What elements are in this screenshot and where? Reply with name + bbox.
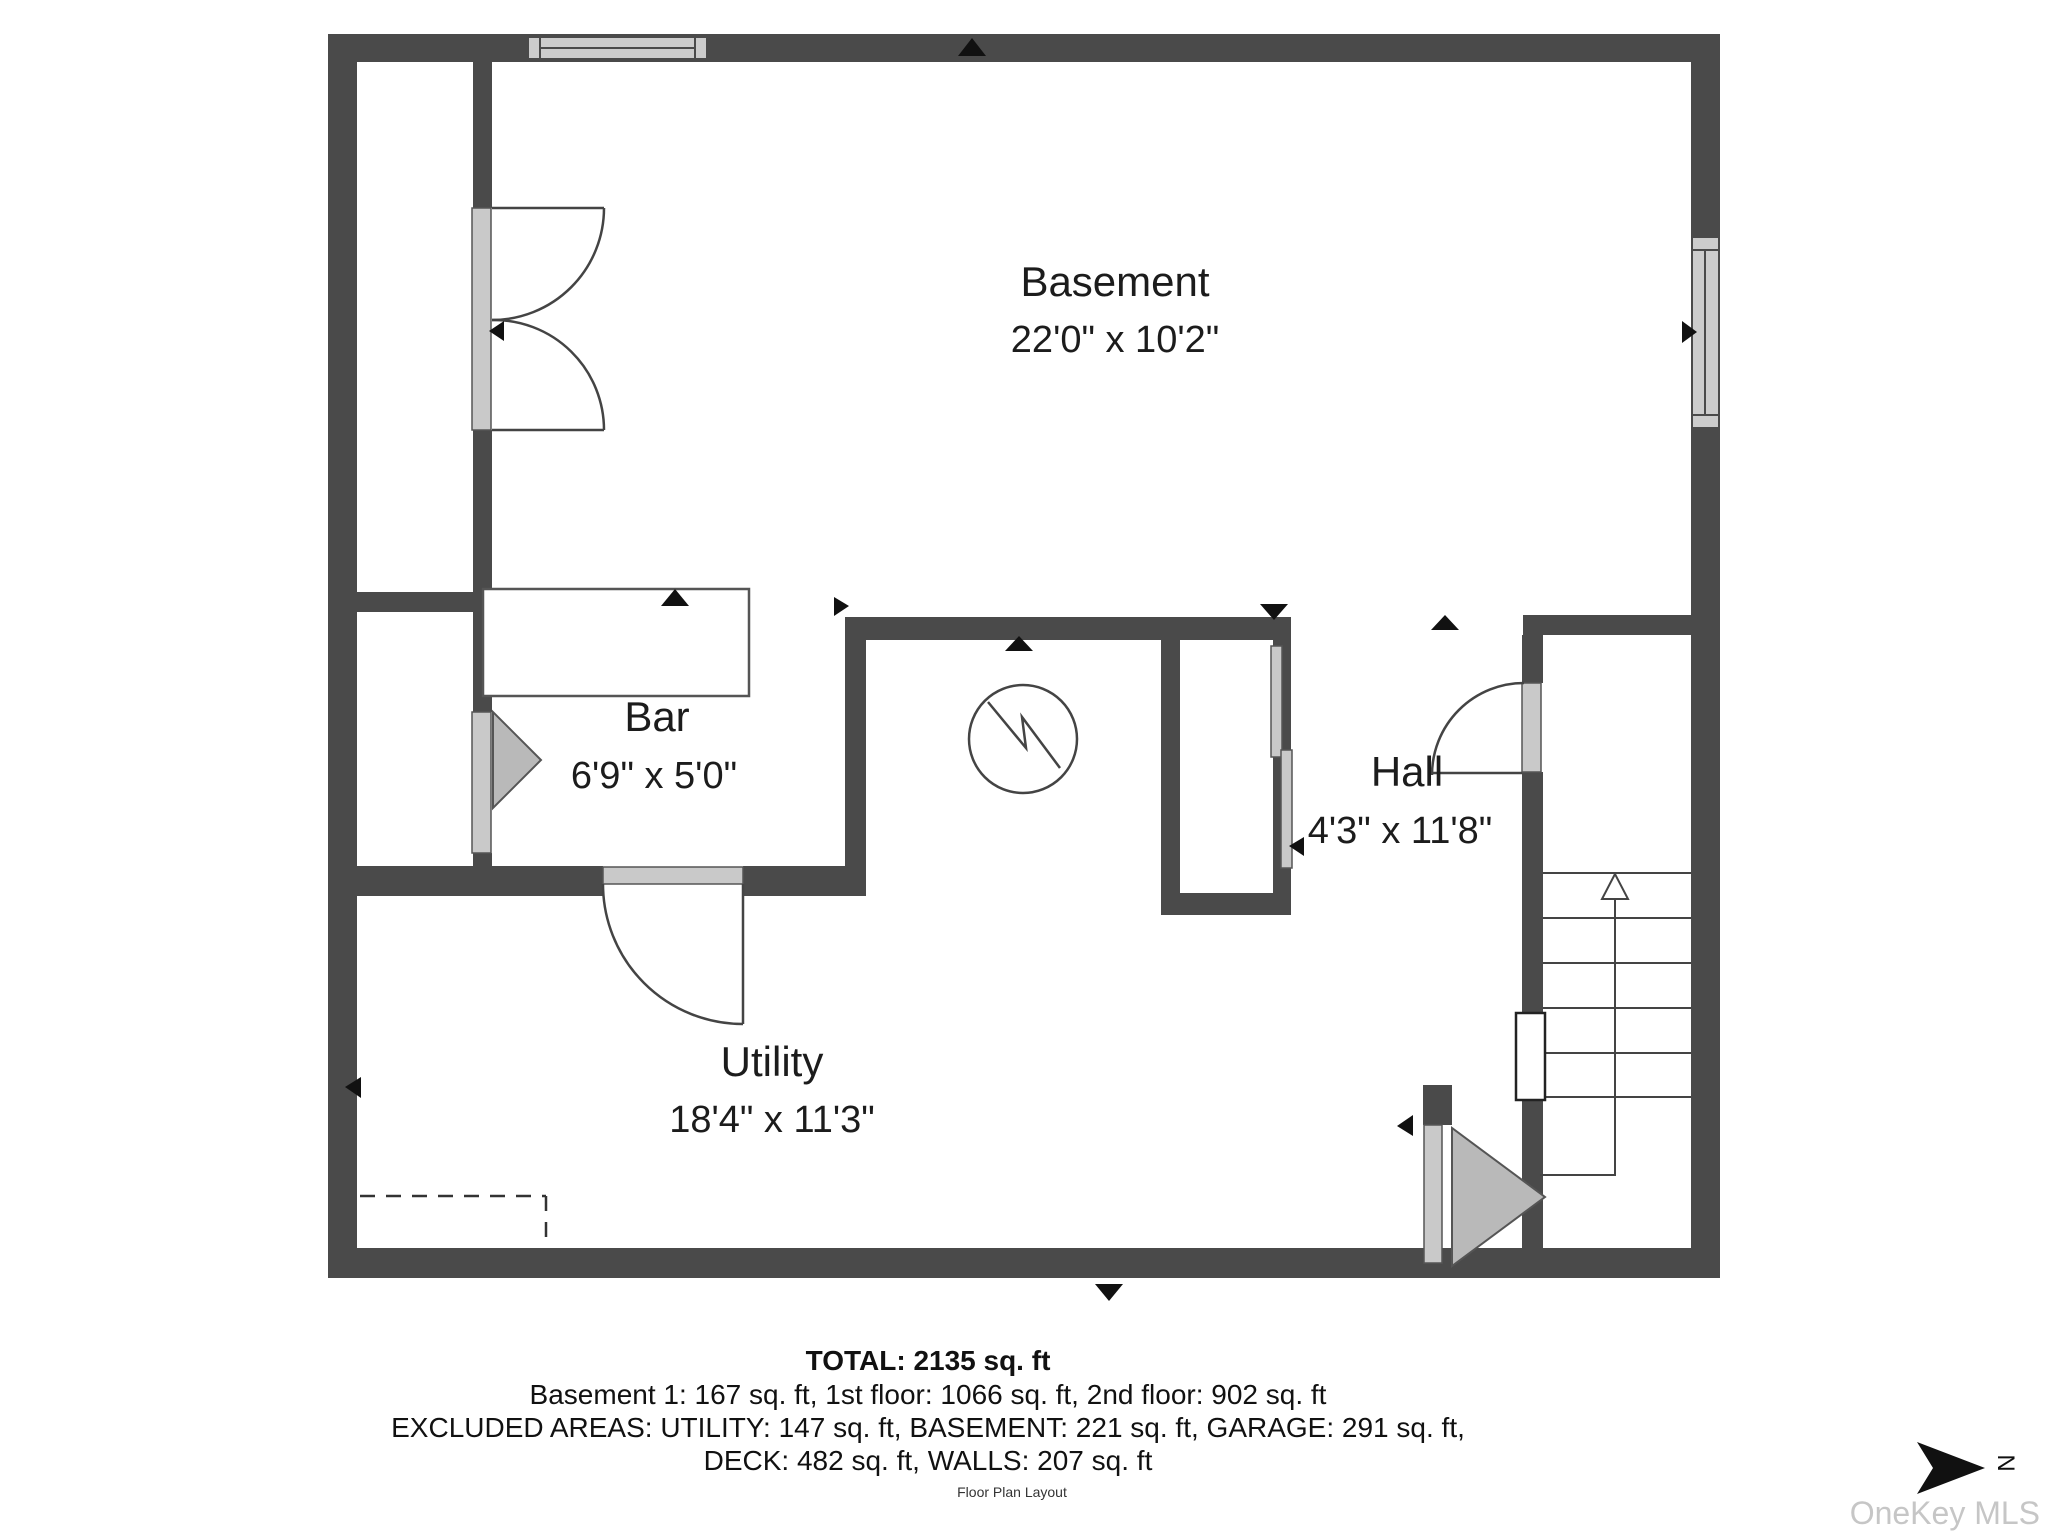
footer-total: TOTAL: 2135 sq. ft	[806, 1345, 1051, 1376]
water-heater-icon	[969, 685, 1077, 793]
footer-floors: Basement 1: 167 sq. ft, 1st floor: 1066 …	[530, 1379, 1327, 1410]
wall-right	[1691, 34, 1720, 1278]
room-label-hall: Hall	[1371, 748, 1443, 795]
room-label-utility: Utility	[721, 1038, 824, 1085]
footer-excluded-2: DECK: 482 sq. ft, WALLS: 207 sq. ft	[704, 1445, 1153, 1476]
floor-plan: Basement 22'0" x 10'2" Bar 6'9" x 5'0" H…	[0, 0, 2048, 1536]
wall-closet-divider	[357, 592, 473, 612]
room-dims-basement: 22'0" x 10'2"	[1011, 319, 1219, 361]
bar-counter	[483, 589, 749, 696]
utility-door	[603, 867, 743, 1024]
room-label-bar: Bar	[624, 693, 689, 740]
marker-left-vestibule	[1397, 1115, 1413, 1136]
compass: N	[1917, 1442, 2019, 1494]
wall-bottom	[328, 1248, 1720, 1278]
marker-down-bottom-wall	[1095, 1284, 1123, 1301]
french-door	[472, 208, 604, 430]
stairs-up-arrow	[1602, 874, 1628, 899]
footer-summary: TOTAL: 2135 sq. ft Basement 1: 167 sq. f…	[391, 1345, 1465, 1500]
room-dims-utility: 18'4" x 11'3"	[669, 1099, 875, 1141]
stair-wall-opening	[1516, 1013, 1545, 1100]
stairs	[1540, 873, 1691, 1175]
wall-heater-left	[845, 640, 866, 896]
north-arrow-icon	[1917, 1442, 1985, 1494]
dashed-area	[360, 1196, 546, 1244]
wall-utility-top-left	[357, 866, 603, 896]
room-dims-hall: 4'3" x 11'8"	[1308, 810, 1492, 852]
marker-up-hall-top	[1431, 615, 1459, 630]
fixtures	[360, 589, 1691, 1244]
footer-caption: Floor Plan Layout	[957, 1484, 1067, 1500]
wall-stair-left-lower	[1522, 772, 1543, 1248]
bar-door	[472, 712, 541, 853]
wall-chamber-divider	[1161, 640, 1180, 893]
wall-chamber-bottom	[1161, 893, 1291, 915]
room-dims-bar: 6'9" x 5'0"	[571, 755, 737, 797]
wall-heater-top	[845, 617, 1291, 640]
marker-right-heater-passage	[834, 597, 849, 616]
north-label: N	[1992, 1454, 2019, 1471]
wall-stair-top	[1523, 615, 1691, 635]
wall-vestibule-stub	[1423, 1085, 1452, 1125]
wall-closet-right-upper	[473, 62, 492, 208]
footer-excluded: EXCLUDED AREAS: UTILITY: 147 sq. ft, BAS…	[391, 1412, 1465, 1443]
wall-stair-left-upper	[1522, 635, 1543, 683]
watermark-text: OneKey MLS	[1850, 1495, 2040, 1531]
windows	[528, 37, 1719, 428]
room-label-basement: Basement	[1020, 258, 1209, 305]
floor-plan-page: Basement 22'0" x 10'2" Bar 6'9" x 5'0" H…	[0, 0, 2048, 1536]
hall-door	[1432, 683, 1541, 775]
window-top	[528, 37, 707, 59]
